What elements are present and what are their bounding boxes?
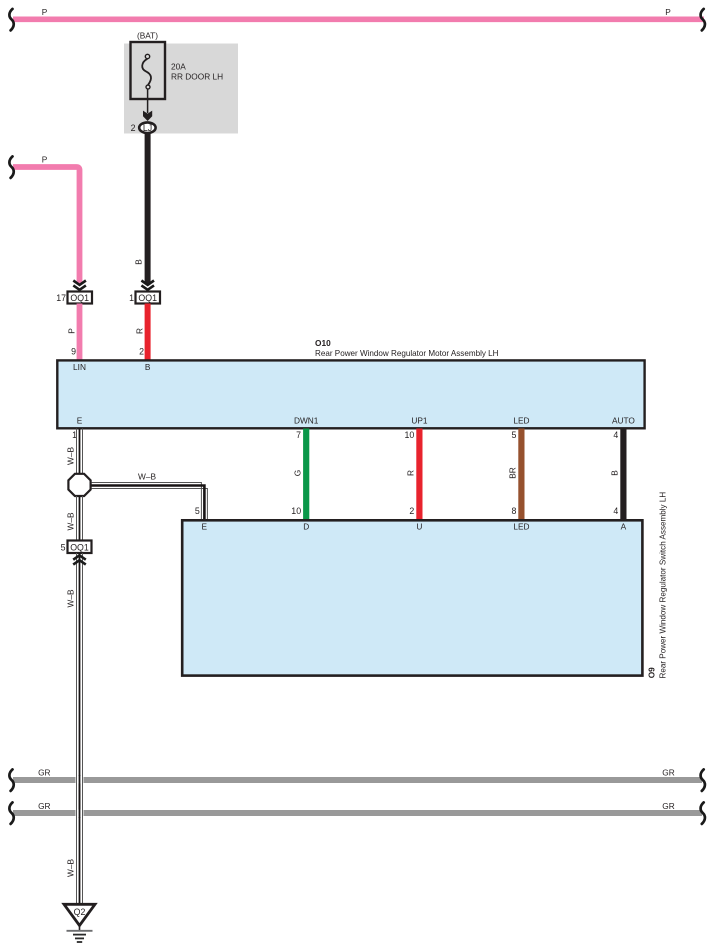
svg-text:LED: LED	[513, 416, 529, 426]
svg-text:GR: GR	[38, 801, 50, 811]
svg-text:(BAT): (BAT)	[137, 31, 158, 41]
svg-text:OQ1: OQ1	[70, 543, 89, 553]
svg-text:9: 9	[71, 347, 76, 357]
svg-text:P: P	[42, 155, 48, 165]
svg-text:5: 5	[61, 543, 66, 553]
svg-text:P: P	[42, 7, 48, 17]
svg-text:5: 5	[195, 506, 200, 516]
svg-text:DWN1: DWN1	[294, 416, 319, 426]
svg-text:W–B: W–B	[66, 512, 76, 530]
svg-text:2: 2	[139, 347, 144, 357]
svg-text:W–B: W–B	[138, 472, 156, 482]
svg-text:4: 4	[613, 506, 618, 516]
svg-text:5: 5	[511, 430, 516, 440]
svg-text:P: P	[665, 7, 671, 17]
svg-text:O10: O10	[315, 338, 331, 348]
svg-text:R: R	[135, 328, 145, 334]
svg-text:W–B: W–B	[66, 859, 76, 877]
svg-text:G: G	[293, 470, 303, 476]
svg-text:RR DOOR LH: RR DOOR LH	[171, 72, 223, 82]
svg-text:OQ1: OQ1	[70, 293, 89, 303]
svg-text:BR: BR	[508, 467, 518, 479]
svg-text:O9: O9	[647, 667, 657, 678]
svg-text:Rear Power Window Regulator Mo: Rear Power Window Regulator Motor Assemb…	[315, 349, 499, 358]
svg-text:7: 7	[296, 430, 301, 440]
svg-text:U: U	[416, 522, 422, 532]
svg-text:A: A	[621, 522, 627, 532]
svg-text:UP1: UP1	[411, 416, 428, 426]
svg-text:E: E	[77, 416, 83, 426]
svg-text:Q2: Q2	[74, 907, 86, 917]
svg-text:R: R	[406, 470, 416, 476]
svg-text:10: 10	[291, 506, 301, 516]
svg-text:GR: GR	[662, 801, 674, 811]
svg-text:LED: LED	[513, 522, 529, 532]
svg-text:20A: 20A	[171, 62, 186, 72]
svg-text:W–B: W–B	[66, 589, 76, 607]
svg-text:AUTO: AUTO	[612, 416, 635, 426]
svg-text:W–B: W–B	[66, 447, 76, 465]
svg-text:1: 1	[129, 293, 134, 303]
svg-text:D: D	[303, 522, 309, 532]
svg-text:B: B	[610, 470, 620, 476]
svg-text:4: 4	[613, 430, 618, 440]
svg-text:P: P	[67, 328, 77, 334]
svg-text:GR: GR	[38, 768, 50, 778]
svg-text:2: 2	[409, 506, 414, 516]
svg-text:OQ1: OQ1	[138, 293, 157, 303]
svg-text:8: 8	[511, 506, 516, 516]
svg-text:GR: GR	[662, 768, 674, 778]
svg-text:B: B	[134, 259, 144, 265]
svg-text:17: 17	[56, 293, 66, 303]
svg-text:LJ: LJ	[143, 123, 152, 133]
svg-text:10: 10	[405, 430, 415, 440]
svg-text:B: B	[145, 362, 151, 372]
svg-text:E: E	[202, 522, 208, 532]
svg-text:LIN: LIN	[73, 362, 86, 372]
svg-text:Rear Power Window Regulator Sw: Rear Power Window Regulator Switch Assem…	[659, 492, 668, 679]
svg-text:2: 2	[131, 123, 136, 133]
